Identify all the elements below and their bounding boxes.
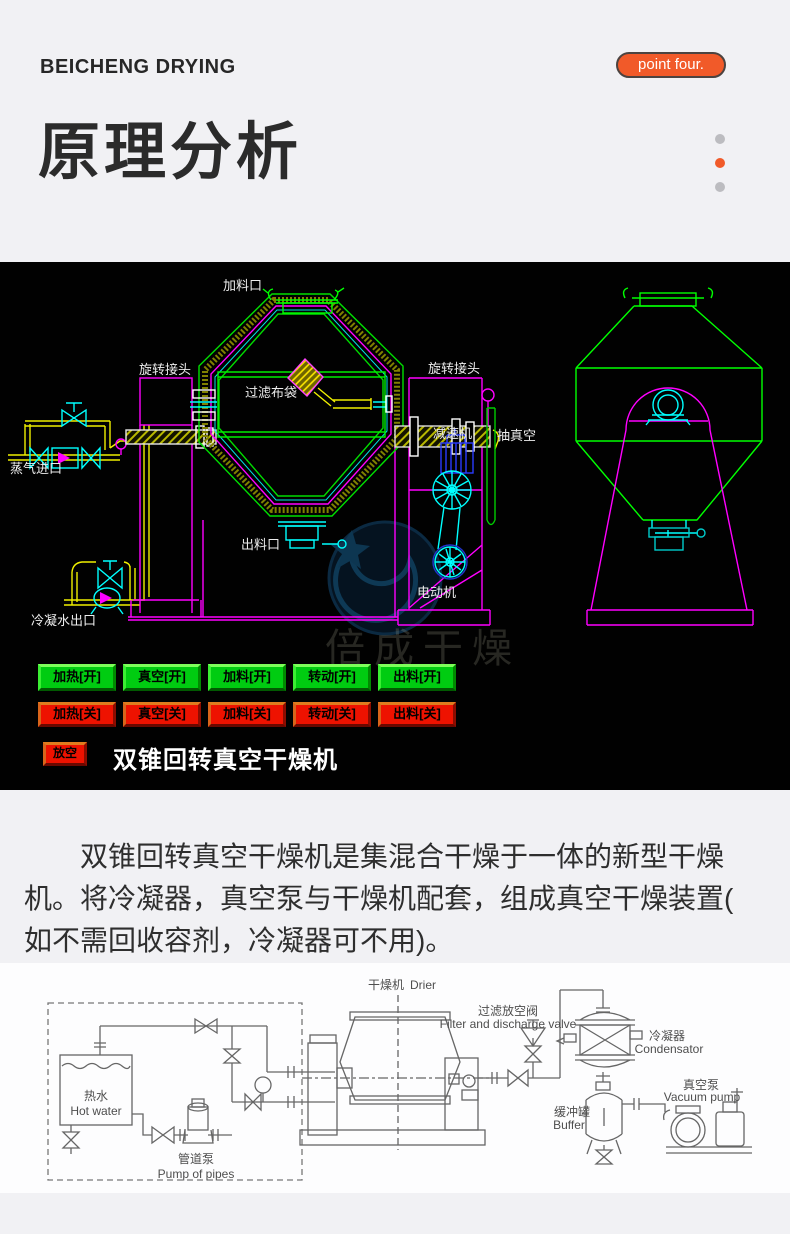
decor-dot [715, 134, 725, 144]
button-discharge-on[interactable]: 出料[开] [378, 664, 456, 691]
point-badge: point four. [616, 52, 726, 78]
brand-text: BEICHENG DRYING [40, 56, 236, 79]
button-feed-on[interactable]: 加料[开] [208, 664, 286, 691]
button-vent[interactable]: 放空 [43, 742, 87, 766]
button-rotate-off[interactable]: 转动[关] [293, 702, 371, 727]
decor-dot-accent [715, 158, 725, 168]
page: BEICHENG DRYING point four. 原理分析 倍成干 [0, 0, 790, 1234]
description-paragraph: 双锥回转真空干燥机是集混合干燥于一体的新型干燥机。将冷凝器，真空泵与干燥机配套，… [24, 836, 766, 962]
button-feed-off[interactable]: 加料[关] [208, 702, 286, 727]
button-vacuum-off[interactable]: 真空[关] [123, 702, 201, 727]
flow-diagram-panel [0, 963, 790, 1193]
button-discharge-off[interactable]: 出料[关] [378, 702, 456, 727]
button-heat-on[interactable]: 加热[开] [38, 664, 116, 691]
button-vacuum-on[interactable]: 真空[开] [123, 664, 201, 691]
machine-caption: 双锥回转真空干燥机 [113, 740, 338, 775]
decor-dot [715, 182, 725, 192]
page-title: 原理分析 [38, 122, 302, 184]
button-heat-off[interactable]: 加热[关] [38, 702, 116, 727]
button-rotate-on[interactable]: 转动[开] [293, 664, 371, 691]
